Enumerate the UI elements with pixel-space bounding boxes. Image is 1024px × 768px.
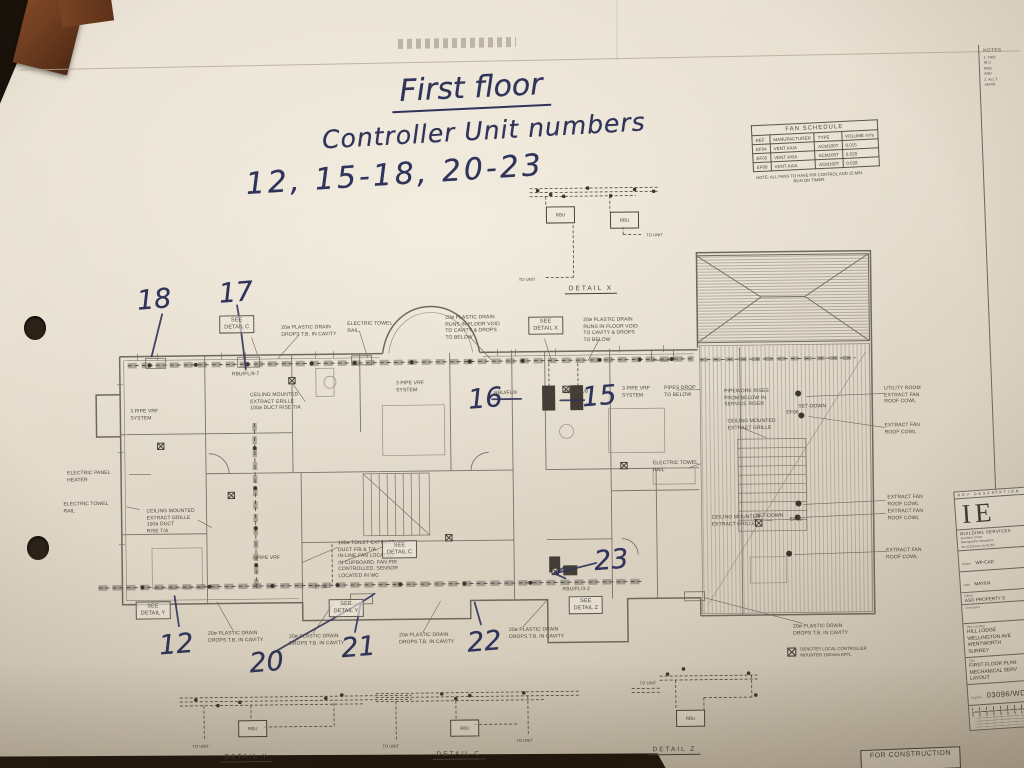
drg-no-label: Drg No. — [971, 695, 982, 700]
plan-label: 20ø PLASTIC DRAIN DROPS T.B. IN CAVITY — [793, 623, 848, 637]
to-unit-label: TO UNIT — [646, 232, 663, 237]
plan-label: SEE DETAIL Y — [136, 601, 171, 620]
plan-label: 20ø PLASTIC DRAIN DROPS T.B. IN CAVITY — [289, 633, 344, 647]
fan-schedule-body: EF04VENT AXIAACM100T0.015EF05VENT AXIAAC… — [752, 139, 879, 172]
plan-label: ELECTRIC TOWEL RAIL — [653, 460, 698, 474]
plan-label: 3 PIPE VRF — [252, 555, 280, 562]
notes-lines: 1. THISIN CPROAND2. ALL TADVIS — [983, 54, 1024, 88]
fan-schedule-cell: VENT AXIA — [771, 160, 816, 171]
rbu-box: RBU — [238, 720, 267, 737]
plan-label: RBU/FL/9 — [565, 389, 588, 396]
plan-label: CEILING MOUNTED EXTRACT GRILLE 100ø DUCT… — [146, 508, 194, 535]
company-logo: IE — [955, 494, 1024, 531]
rbu-box: RBU — [676, 710, 705, 727]
plan-label: EF05 — [790, 516, 802, 523]
handwritten-number: 22 — [466, 625, 503, 659]
stamp-for-construction: FOR CONSTRUCTION — [860, 746, 961, 768]
fan-schedule-cell: 0.028 — [843, 157, 879, 168]
plan-label: RBU/FL/3-2 — [562, 586, 589, 593]
local-controller-icon — [787, 648, 796, 657]
detail-c-header: DETAIL C — [432, 750, 485, 760]
plan-label: ELECTRIC PANEL HEATER — [67, 470, 111, 484]
plan-label: SEE DETAIL Y — [329, 599, 364, 618]
drawn-label: drawn — [962, 562, 971, 567]
plan-label: CEILING MOUNTED EXTRACT GRILLE 100ø DUCT… — [250, 392, 301, 412]
plan-label: UTILITY ROOM EXTRACT FAN ROOF COWL — [884, 385, 921, 405]
to-unit-label: TO UNIT — [382, 743, 399, 748]
plan-label: EXTRACT FAN ROOF COWL — [888, 508, 924, 521]
rbu-box: RBU — [546, 206, 575, 223]
plan-label: ELECTRIC TOWEL RAIL — [347, 320, 392, 334]
notes-line: ADVIS — [984, 81, 1024, 88]
notes-title: NOTES — [983, 46, 1024, 53]
to-unit-label: TO UNIT — [519, 277, 536, 282]
plan-label: 3 PIPE VRF SYSTEM — [396, 380, 424, 393]
plan-label: 3 PIPE VRF SYSTEM — [130, 408, 158, 421]
plan-label: EXTRACT FAN ROOF COWL — [886, 547, 922, 560]
drawing-title: FIRST FLOOR PLAN MECHANICAL SERV LAYOUT — [969, 657, 1024, 683]
plan-label: SET-DOWN — [798, 403, 826, 410]
plan-label: SEE DETAIL C — [382, 540, 417, 559]
plan-label: SEE DETAIL X — [528, 316, 563, 335]
plan-label: PIPES DROP TO BELOW — [664, 385, 696, 398]
date-value: MAY/04 — [974, 580, 990, 586]
fan-schedule-table: FAN SCHEDULE REFMANUFACTURERTYPEVOLUME m… — [751, 119, 880, 186]
legend: DENOTES LOCAL CONTROLLER MOUNTED 1500mm … — [787, 646, 867, 658]
plan-label: EF04 — [314, 584, 326, 591]
plan-label: EXTRACT FAN ROOF COWL — [887, 494, 923, 507]
to-unit-label: TO UNIT — [516, 738, 533, 743]
plan-label: CEILING MOUNTED EXTRACT GRILLE — [727, 418, 775, 432]
plan-label: CEILING MOUNTED EXTRACT GRILLE — [712, 514, 760, 528]
legend-text: DENOTES LOCAL CONTROLLER MOUNTED 1500mm … — [800, 646, 867, 658]
detail-y-header: DETAIL Y — [220, 753, 272, 763]
fan-schedule-cell: ACM100T — [815, 159, 843, 169]
plan-label: 20ø PLASTIC DRAIN DROPS T.B. IN CAVITY — [208, 630, 263, 644]
plan-label: SEE DETAIL Z — [569, 596, 604, 615]
fan-schedule-cell: EF06 — [753, 162, 771, 172]
handwritten-number: 15 — [581, 380, 618, 414]
to-unit-label: TO UNIT — [192, 744, 209, 749]
rbu-box: RBU — [450, 719, 479, 736]
plan-label: SEE DETAIL C — [219, 315, 254, 334]
to-unit-label: TO UNIT — [640, 680, 657, 685]
plan-label: RBU/FL/9-7 — [232, 371, 259, 378]
site-value: HILL LODGE WELLINGTON AVE WENTWORTH SURR… — [967, 624, 1024, 656]
plan-label: ELECTRIC TOWEL RAIL — [63, 501, 108, 515]
plan-label: 20ø PLASTIC DRAIN DROPS T.B. IN CAVITY — [399, 632, 454, 646]
handwritten-number: 20 — [248, 646, 285, 680]
handwritten-number: 16 — [467, 382, 504, 416]
plan-label: RBU/FL/9 — [494, 390, 517, 397]
drawing-content: First floor Controller Unit numbers 12, … — [0, 0, 1024, 768]
detail-z-header: DETAIL Z — [648, 746, 700, 756]
handwritten-number: 21 — [340, 631, 377, 665]
plan-label: PIPEWORK RISES FROM BELOW IN SERVICE RIS… — [724, 388, 769, 408]
drg-no-value: 03096/WD/ — [986, 688, 1024, 700]
date-label: date — [964, 583, 970, 587]
plan-label: EXTRACT FAN ROOF COWL — [884, 422, 920, 435]
drawn-value: WP-CAD — [975, 559, 994, 565]
plan-label: SET-DOWN — [756, 513, 784, 520]
detail-x-header: DETAIL X — [565, 285, 617, 295]
plan-label: 20ø PLASTIC DRAIN DROPS T.B. IN CAVITY — [509, 626, 564, 640]
plan-label: 20ø PLASTIC DRAIN RUNS IN FLOOR VOID TO … — [445, 314, 500, 341]
handwritten-title: First floor — [391, 67, 552, 113]
handwritten-number: 18 — [136, 283, 173, 317]
plan-label: 20ø PLASTIC DRAIN RUNS IN FLOOR VOID TO … — [583, 316, 638, 343]
plan-label: 20ø PLASTIC DRAIN DROPS T.B. IN CAVITY — [281, 324, 336, 338]
handwritten-number: 17 — [218, 276, 255, 310]
handwritten-number: 12 — [158, 628, 195, 662]
rbu-box: RBU — [610, 211, 639, 228]
plan-label: 3 PIPE VRF SYSTEM — [622, 385, 650, 398]
plan-label: EF06 — [786, 409, 798, 416]
photo-of-drawing: First floor Controller Unit numbers 12, … — [0, 0, 1024, 768]
handwritten-number: 23 — [593, 543, 630, 577]
